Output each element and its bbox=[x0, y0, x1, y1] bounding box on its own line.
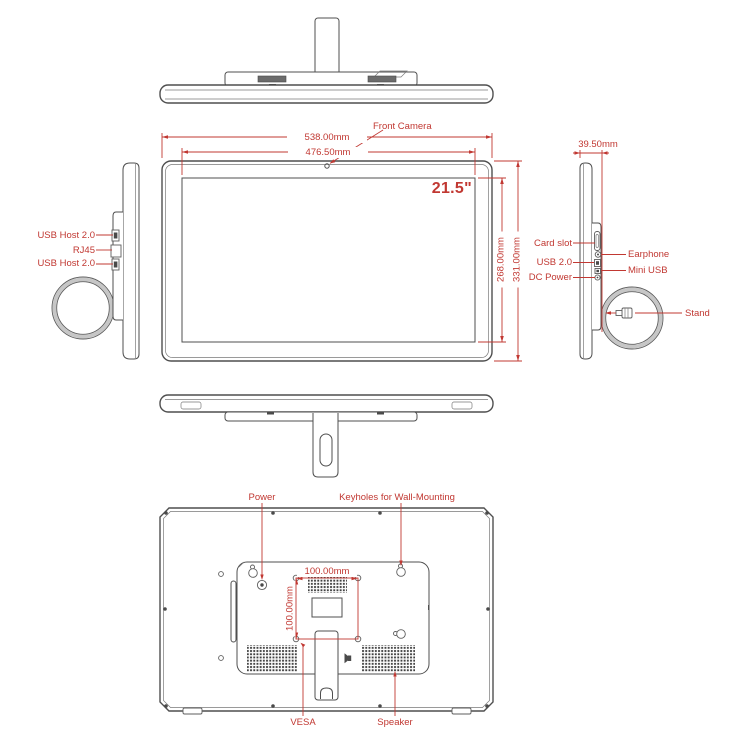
technical-drawing-canvas: 538.00mm 476.50mm Front Camera 21.5" 268… bbox=[0, 0, 750, 750]
earphone-port bbox=[595, 252, 601, 258]
speaker-grille-right bbox=[362, 645, 415, 672]
earphone-label: Earphone bbox=[628, 249, 669, 260]
side-profile-left bbox=[123, 163, 139, 359]
card-slot-port bbox=[595, 232, 601, 251]
card-slot-label: Card slot bbox=[510, 238, 572, 249]
rj45-label: RJ45 bbox=[25, 245, 95, 256]
usb-host-port-bottom bbox=[112, 259, 119, 270]
dim-screen-width-label: 476.50mm bbox=[288, 147, 368, 158]
dim-depth-label: 39.50mm bbox=[567, 139, 629, 150]
monitor-body-bottom bbox=[160, 395, 493, 412]
usb-port bbox=[595, 260, 601, 267]
usb-host-port-top bbox=[112, 230, 119, 241]
top-view bbox=[160, 18, 493, 103]
power-button bbox=[257, 580, 266, 589]
monitor-body-top bbox=[160, 85, 493, 103]
stand-label: Stand bbox=[685, 308, 710, 319]
stand-ring-right bbox=[603, 289, 660, 346]
usb-host-bottom-label: USB Host 2.0 bbox=[25, 258, 95, 269]
usb-host-top-label: USB Host 2.0 bbox=[25, 230, 95, 241]
vesa-width-label: 100.00mm bbox=[297, 566, 357, 577]
mini-usb-port bbox=[595, 269, 601, 274]
front-view bbox=[162, 130, 522, 361]
rj45-port bbox=[111, 245, 121, 257]
drawing-linework bbox=[0, 0, 750, 750]
keyholes-label: Keyholes for Wall-Mounting bbox=[307, 492, 487, 503]
screen-area bbox=[182, 178, 475, 342]
side-profile-right bbox=[580, 163, 592, 359]
stand-knob bbox=[616, 308, 632, 318]
usb-label: USB 2.0 bbox=[510, 257, 572, 268]
stand-ring-left bbox=[54, 279, 111, 336]
stand-column-top bbox=[315, 18, 339, 78]
mini-usb-label: Mini USB bbox=[628, 265, 668, 276]
back-view bbox=[160, 503, 493, 716]
speaker-grille-left bbox=[247, 645, 297, 672]
bottom-view bbox=[160, 395, 493, 477]
dim-screen-height-label: 268.00mm bbox=[496, 232, 507, 288]
screen-size-label: 21.5" bbox=[420, 180, 472, 198]
stand-column-back bbox=[315, 631, 338, 700]
vent-grille-left bbox=[258, 76, 286, 82]
front-camera-label: Front Camera bbox=[373, 121, 432, 132]
vent-grille-right bbox=[368, 76, 396, 82]
vesa-height-label: 100.00mm bbox=[285, 581, 296, 637]
stand-column-bottom bbox=[313, 413, 338, 477]
back-foot-left bbox=[183, 708, 202, 714]
speaker-label: Speaker bbox=[365, 717, 425, 728]
dc-power-port bbox=[595, 275, 600, 280]
vesa-label: VESA bbox=[273, 717, 333, 728]
label-sticker bbox=[312, 598, 342, 617]
dc-power-label: DC Power bbox=[510, 272, 572, 283]
back-foot-right bbox=[452, 708, 471, 714]
dim-outer-width-label: 538.00mm bbox=[287, 132, 367, 143]
power-label: Power bbox=[232, 492, 292, 503]
